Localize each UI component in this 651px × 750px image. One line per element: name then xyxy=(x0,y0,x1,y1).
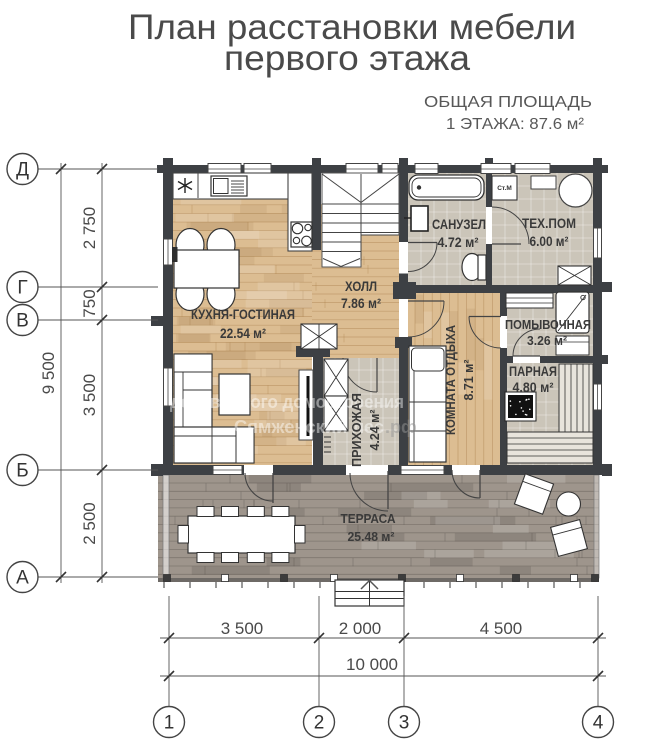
svg-text:4.24 м²: 4.24 м² xyxy=(368,410,382,451)
svg-text:ПАРНАЯ: ПАРНАЯ xyxy=(509,363,557,379)
svg-text:22.54 м²: 22.54 м² xyxy=(220,326,266,341)
svg-text:3 500: 3 500 xyxy=(80,374,99,417)
svg-text:4.72 м²: 4.72 м² xyxy=(438,235,479,250)
svg-text:Г: Г xyxy=(17,278,27,299)
svg-text:ТЕРРАСА: ТЕРРАСА xyxy=(341,511,397,526)
svg-text:Ст.М: Ст.М xyxy=(497,185,512,192)
svg-text:9 500: 9 500 xyxy=(39,352,58,395)
svg-text:САНУЗЕЛ: САНУЗЕЛ xyxy=(432,216,486,232)
svg-text:А: А xyxy=(16,568,29,589)
svg-text:25.48 м²: 25.48 м² xyxy=(348,530,395,544)
svg-text:КОМНАТА ОТДЫХА: КОМНАТА ОТДЫХА xyxy=(443,324,458,435)
svg-text:4 500: 4 500 xyxy=(480,619,523,638)
svg-text:8.71 м²: 8.71 м² xyxy=(462,360,476,401)
svg-text:3.26 м²: 3.26 м² xyxy=(527,333,568,348)
svg-text:1 ЭТАЖА: 87.6 м²: 1 ЭТАЖА: 87.6 м² xyxy=(446,116,585,133)
svg-text:2 750: 2 750 xyxy=(80,207,99,250)
svg-text:2 000: 2 000 xyxy=(339,619,382,638)
svg-text:ХОЛЛ: ХОЛЛ xyxy=(345,278,377,294)
svg-text:ПОМЫВОЧНАЯ: ПОМЫВОЧНАЯ xyxy=(505,317,591,332)
svg-text:В: В xyxy=(16,311,29,332)
svg-text:10 000: 10 000 xyxy=(346,655,398,674)
svg-text:4: 4 xyxy=(593,713,604,734)
svg-text:7.86 м²: 7.86 м² xyxy=(341,296,381,311)
svg-text:ПРИХОЖАЯ: ПРИХОЖАЯ xyxy=(349,393,364,467)
svg-text:Б: Б xyxy=(16,461,28,482)
svg-text:Д: Д xyxy=(16,160,29,181)
svg-text:деревянного домостроения: деревянного домостроения xyxy=(170,392,404,412)
svg-text:750: 750 xyxy=(80,289,99,317)
svg-text:1: 1 xyxy=(164,713,175,734)
svg-text:2 500: 2 500 xyxy=(80,502,99,545)
svg-text:3 500: 3 500 xyxy=(221,619,264,638)
svg-text:6.00 м²: 6.00 м² xyxy=(530,234,569,249)
svg-text:ОБЩАЯ ПЛОЩАДЬ: ОБЩАЯ ПЛОЩАДЬ xyxy=(424,94,592,111)
svg-text:ТЕХ.ПОМ: ТЕХ.ПОМ xyxy=(522,215,576,231)
svg-text:4.80 м²: 4.80 м² xyxy=(513,380,554,395)
svg-text:3: 3 xyxy=(399,713,410,734)
svg-text:2: 2 xyxy=(314,713,325,734)
svg-text:первого этажа: первого этажа xyxy=(224,39,471,78)
svg-text:.рф: .рф xyxy=(385,417,417,437)
svg-text:КУХНЯ-ГОСТИНАЯ: КУХНЯ-ГОСТИНАЯ xyxy=(191,306,295,322)
